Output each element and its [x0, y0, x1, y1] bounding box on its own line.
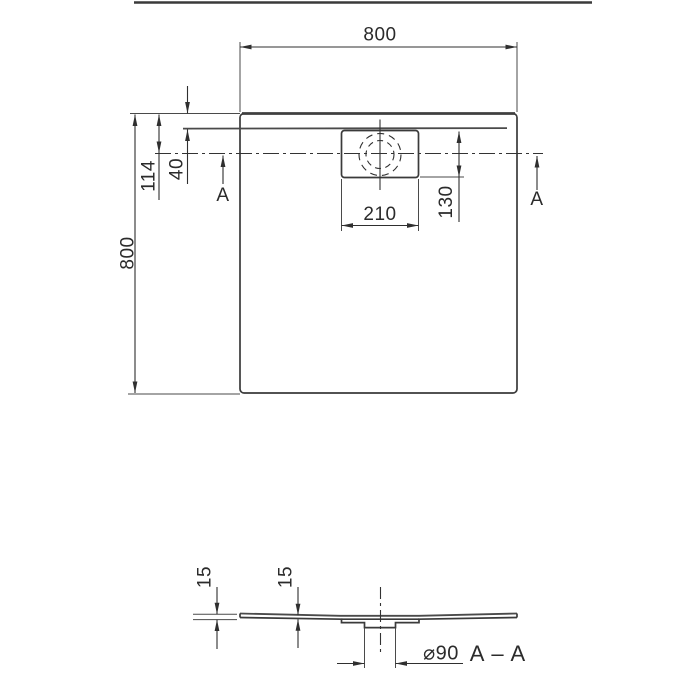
section-arrow-left: A — [216, 156, 229, 207]
section-title: A – A — [470, 641, 526, 666]
dim-drain-depth-130: 130 — [420, 132, 464, 223]
dim-rim-inset-40: 40 — [167, 86, 188, 184]
plan-inner-rim-line — [183, 128, 507, 129]
dim-114-label: 114 — [139, 160, 160, 192]
dim-top-width: 800 — [240, 25, 517, 113]
dim-210-label: 210 — [363, 204, 396, 225]
section-marker-right-label: A — [530, 189, 543, 210]
section-profile — [240, 614, 517, 628]
dim-diameter-label: ⌀90 — [423, 643, 459, 665]
dim-15-left-label: 15 — [195, 566, 216, 588]
drawing-canvas: 800 800 114 40 210 — [0, 0, 700, 700]
drain-cover — [342, 120, 419, 191]
dim-130-label: 130 — [436, 185, 457, 218]
dim-top-width-label: 800 — [363, 25, 396, 46]
section-top-surface — [240, 614, 517, 616]
dim-edge-15-left: 15 — [193, 566, 237, 649]
section-view: 15 15 ⌀90 A – A — [193, 566, 526, 668]
dim-15-inner-label: 15 — [276, 566, 297, 588]
shower-tray-technical-drawing: 800 800 114 40 210 — [0, 0, 700, 700]
dim-edge-15-inner: 15 — [276, 566, 298, 648]
section-arrow-right: A — [530, 156, 543, 210]
dim-drain-diameter: ⌀90 — [337, 628, 463, 668]
dim-left-height: 800 — [118, 114, 240, 395]
plan-tray-outline — [240, 114, 517, 394]
dim-left-height-label: 800 — [118, 236, 139, 269]
dim-40-label: 40 — [167, 158, 188, 180]
plan-view: 800 800 114 40 210 — [118, 25, 544, 395]
dim-edge-to-drain-114: 114 — [139, 115, 160, 201]
section-marker-left-label: A — [216, 185, 229, 206]
